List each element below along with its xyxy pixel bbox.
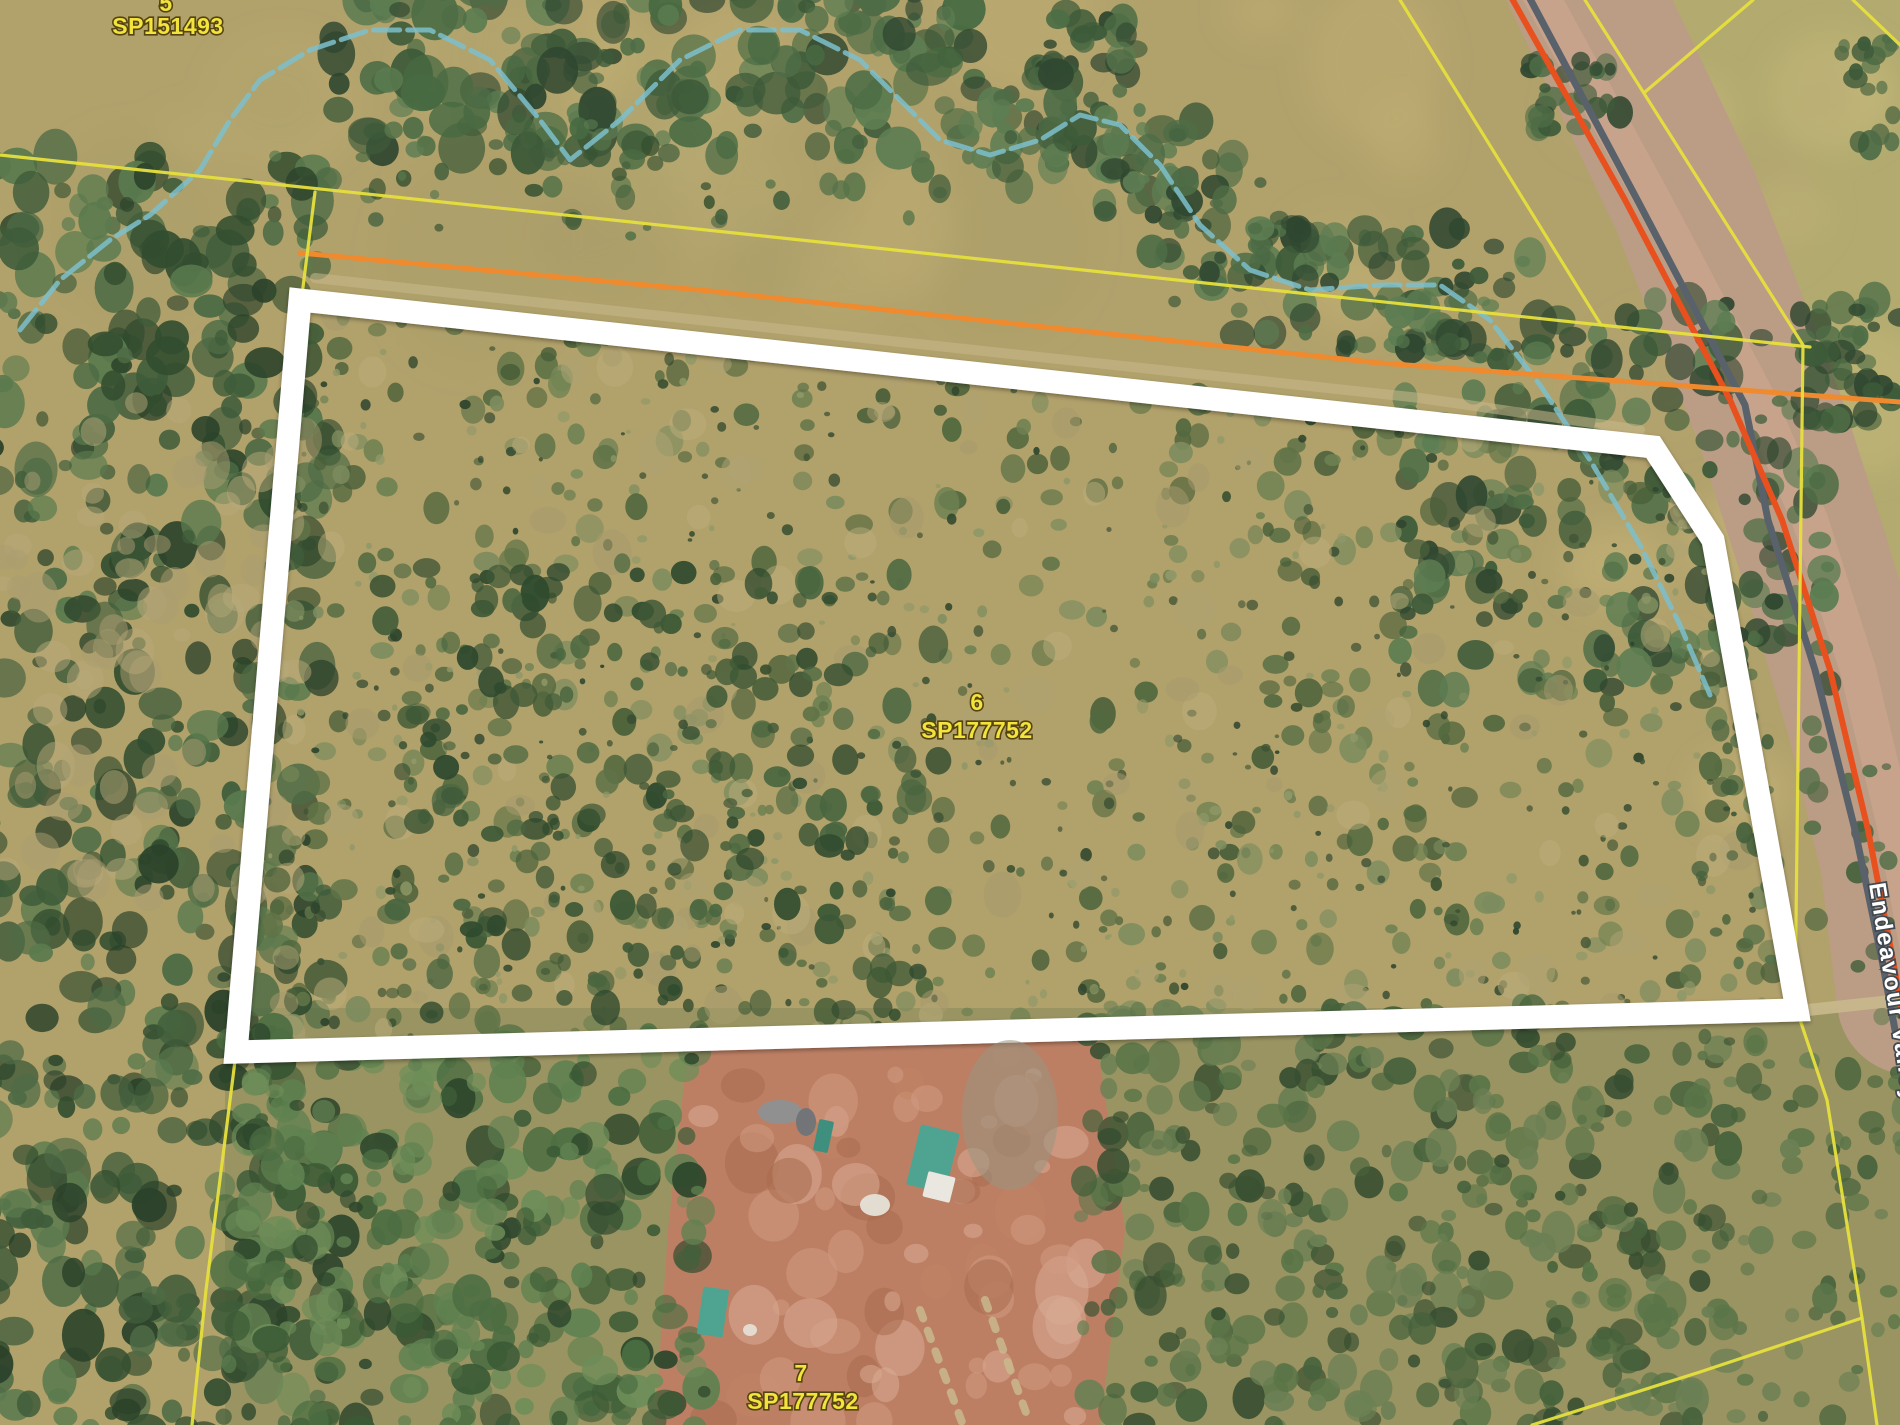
parcel7-lot-label: 7 [794,1360,807,1386]
yard-object-1 [796,1108,816,1136]
parcel7-plan-label: SP177752 [747,1388,858,1414]
yard-object-4 [962,1040,1058,1190]
parcel6-plan-label: SP177752 [921,717,1032,743]
aerial-map-screenshot: 5 SP151493 6 SP177752 7 SP177752 Endeavo… [0,0,1900,1425]
yard-object-0 [758,1100,802,1124]
satellite-map: 5 SP151493 6 SP177752 7 SP177752 Endeavo… [0,0,1900,1425]
parcel5-plan-label: SP151493 [112,13,223,39]
yard-object-2 [860,1194,890,1216]
yard-object-3 [743,1324,757,1336]
parcel6-lot-label: 6 [970,689,983,715]
